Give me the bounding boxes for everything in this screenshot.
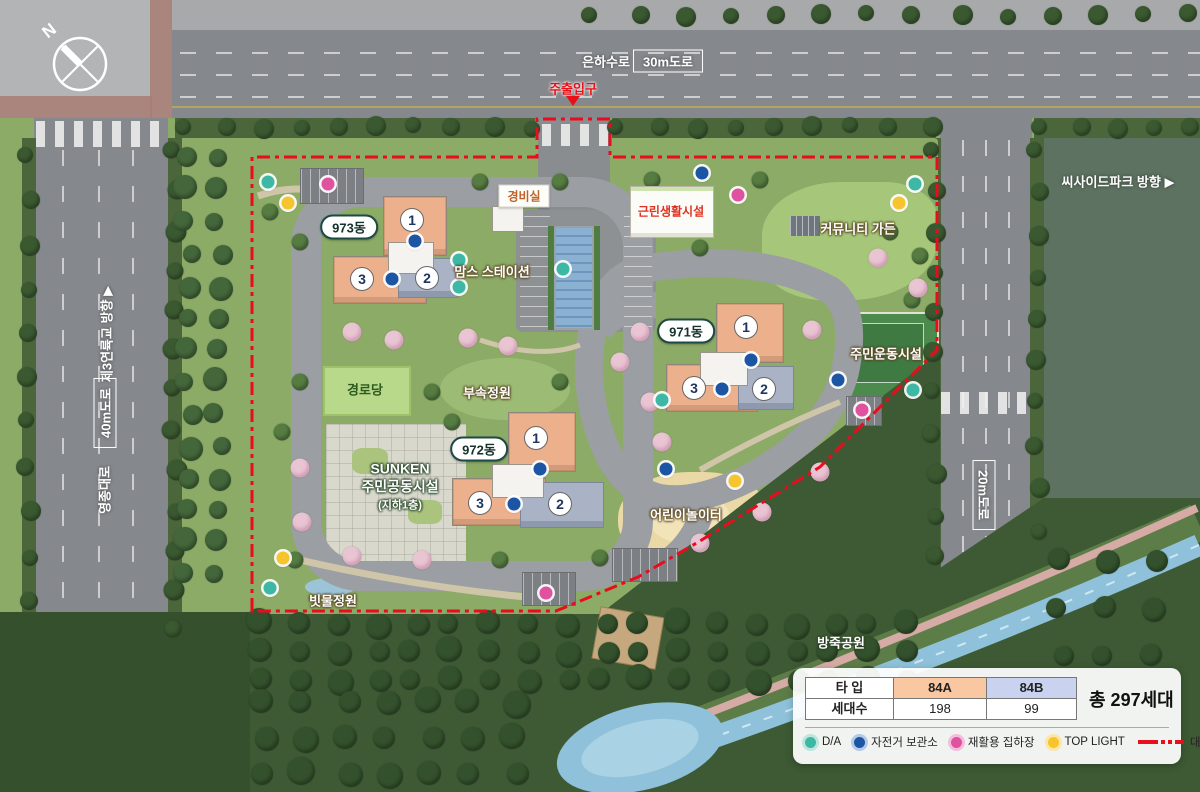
bike-marker [534, 463, 547, 476]
entrance-arrow-icon [566, 96, 580, 106]
da-marker [264, 582, 277, 595]
da-marker [557, 263, 570, 276]
da-marker [909, 178, 922, 191]
rain-garden-label: 빗물정원 [309, 591, 357, 610]
legend-item-1: 자전거 보관소 [854, 734, 938, 750]
da-marker [656, 394, 669, 407]
recycle-marker [322, 178, 335, 191]
legend-item-3: TOP LIGHT [1048, 736, 1125, 748]
main-entrance-label: 주출입구 [549, 79, 597, 98]
table-count-84b: 99 [987, 699, 1077, 720]
neighborhood-label: 근린생활시설 [638, 203, 704, 220]
boundary-line-icon [1138, 740, 1184, 744]
legend-label: 자전거 보관소 [871, 734, 938, 750]
recycle-marker [856, 404, 869, 417]
moms-station-label: 맘스 스테이션 [454, 262, 529, 281]
table-type-84b: 84B [987, 678, 1077, 699]
legend-panel: 타 입 84A 84B 세대수 198 99 총 297세대 D/A자전거 보관… [793, 668, 1181, 764]
legend-item-0: D/A [805, 736, 841, 748]
left-road-size: 40m도로 [94, 378, 117, 448]
bike-marker [832, 374, 845, 387]
toplight-marker [277, 552, 290, 565]
building-badge-971: 971동 [657, 319, 715, 344]
bike-marker [660, 463, 673, 476]
legend-label: 대지경계선 [1190, 734, 1200, 750]
compass-n: N [38, 19, 59, 42]
left-road-name: 영종대로 [95, 466, 114, 514]
bangjuk-park-label: 방죽공원 [817, 633, 865, 652]
da-marker [453, 281, 466, 294]
legend-items-row: D/A자전거 보관소재활용 집하장TOP LIGHT 대지경계선 [805, 734, 1169, 750]
table-count-label: 세대수 [806, 699, 894, 720]
legend-dot-icon [1048, 737, 1059, 748]
table-count-84a: 198 [894, 699, 987, 720]
recycle-marker [540, 587, 553, 600]
legend-item-boundary: 대지경계선 [1138, 734, 1200, 750]
building-badge-972: 972동 [450, 437, 508, 462]
toplight-marker [729, 475, 742, 488]
legend-dot-icon [854, 737, 865, 748]
building-badge-973: 973동 [320, 215, 378, 240]
legend-label: 재활용 집하장 [968, 734, 1035, 750]
right-road-size: 20m도로 [973, 460, 996, 530]
top-road-name: 은하수로 [582, 52, 630, 71]
toplight-marker [893, 197, 906, 210]
toplight-marker [282, 197, 295, 210]
senior-center-label: 경로당 [347, 380, 383, 399]
site-plan-map: 1 2 3 1 2 3 1 2 3 은하수로 30m도로 주출입구 제3연륙교 … [0, 0, 1200, 792]
guard-post-label: 경비실 [498, 185, 549, 208]
bike-marker [696, 167, 709, 180]
annex-garden-label: 부속정원 [463, 383, 511, 402]
community-garden-label: 커뮤니티 가든 [820, 219, 895, 238]
da-marker [262, 176, 275, 189]
seaside-park-direction: 씨사이드파크 방향 ▶ [1062, 172, 1175, 191]
bike-marker [386, 273, 399, 286]
total-households: 총 297세대 [1089, 686, 1174, 712]
sports-facility-label: 주민운동시설 [850, 344, 922, 363]
bike-marker [745, 354, 758, 367]
legend-item-2: 재활용 집하장 [951, 734, 1035, 750]
da-marker [907, 384, 920, 397]
sunken-facility-label: SUNKEN 주민공동시설 (지하1층) [361, 461, 438, 514]
legend-label: TOP LIGHT [1065, 736, 1125, 748]
bike-marker [508, 498, 521, 511]
left-road-direction: 제3연륙교 방향 ▶ [97, 286, 116, 382]
compass-icon: N [28, 10, 128, 110]
recycle-marker [732, 189, 745, 202]
table-type-84a: 84A [894, 678, 987, 699]
unit-type-table: 타 입 84A 84B 세대수 198 99 [805, 677, 1077, 720]
legend-label: D/A [822, 736, 841, 748]
legend-dot-icon [951, 737, 962, 748]
legend-dot-icon [805, 737, 816, 748]
bike-marker [409, 235, 422, 248]
bike-marker [716, 383, 729, 396]
playground-label: 어린이놀이터 [650, 505, 722, 524]
table-type-label: 타 입 [806, 678, 894, 699]
top-road-size: 30m도로 [633, 50, 703, 73]
